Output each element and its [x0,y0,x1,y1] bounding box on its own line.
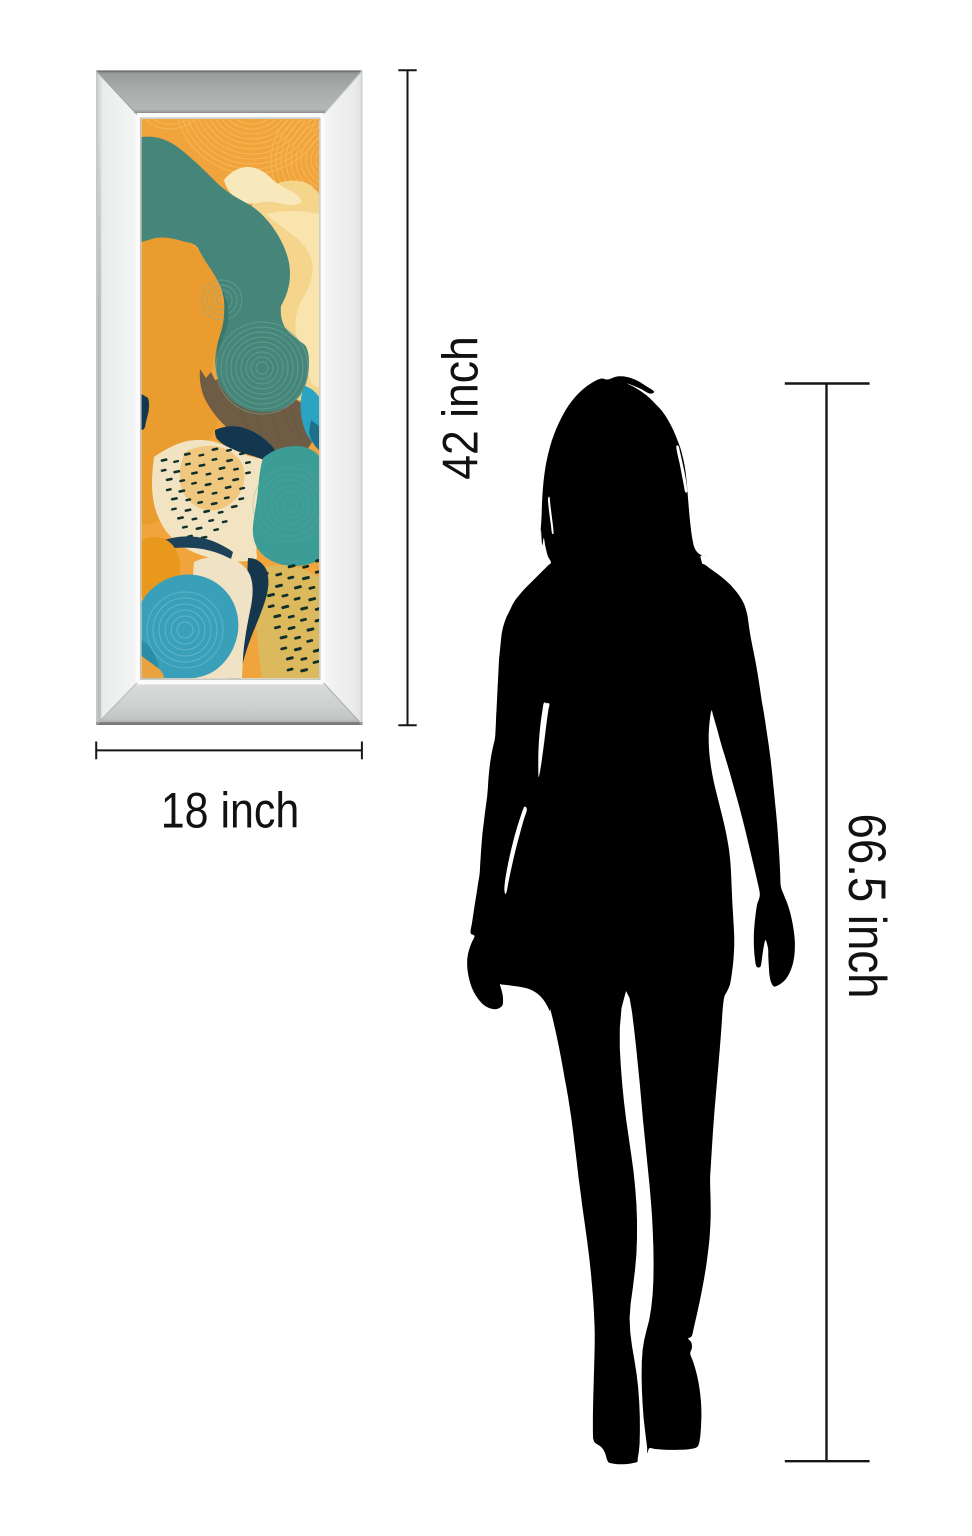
svg-text:42 inch: 42 inch [433,336,489,480]
svg-text:18 inch: 18 inch [161,783,300,839]
svg-text:66.5 inch: 66.5 inch [837,814,896,999]
